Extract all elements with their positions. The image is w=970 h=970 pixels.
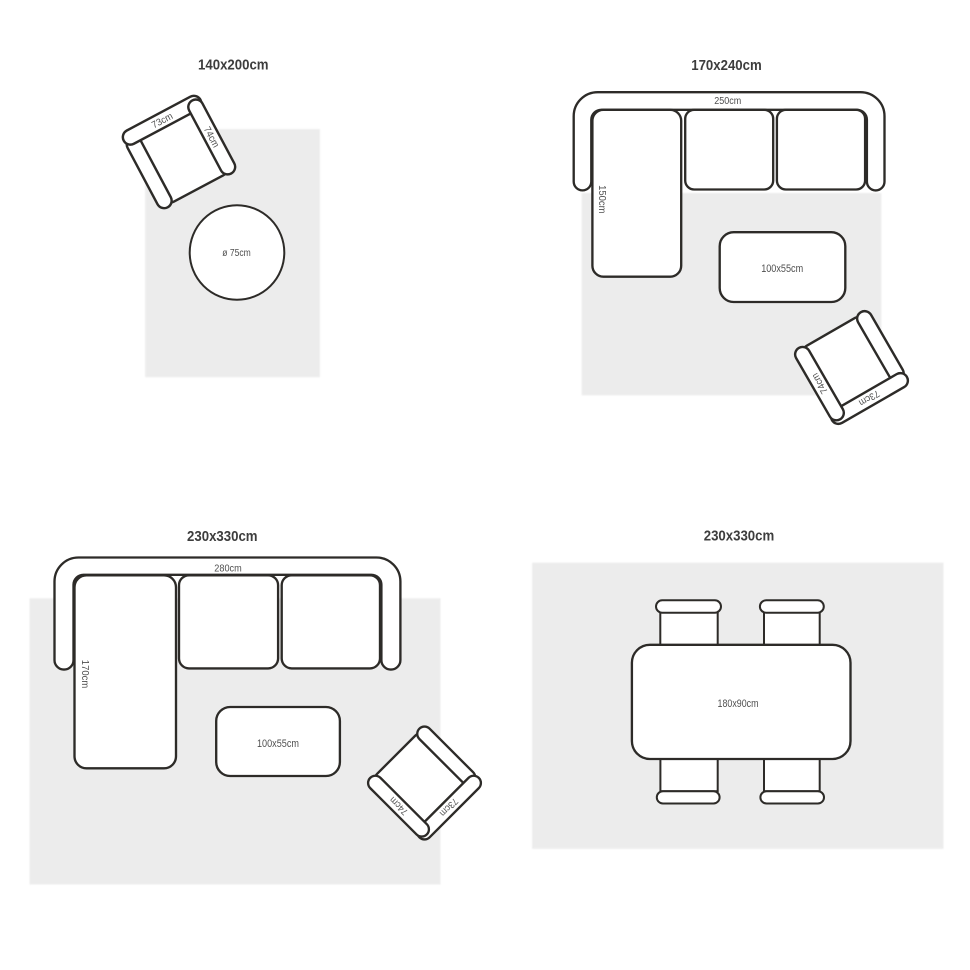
- svg-text:170cm: 170cm: [79, 660, 90, 688]
- svg-text:100x55cm: 100x55cm: [761, 263, 803, 275]
- svg-text:100x55cm: 100x55cm: [257, 738, 299, 750]
- svg-text:140x200cm: 140x200cm: [198, 57, 269, 73]
- svg-text:170x240cm: 170x240cm: [691, 58, 762, 74]
- svg-text:280cm: 280cm: [214, 563, 241, 574]
- svg-text:230x330cm: 230x330cm: [187, 529, 258, 545]
- svg-text:180x90cm: 180x90cm: [718, 698, 759, 710]
- svg-text:250cm: 250cm: [714, 96, 741, 107]
- svg-text:150cm: 150cm: [596, 185, 607, 213]
- svg-text:ø 75cm: ø 75cm: [222, 248, 251, 259]
- svg-text:230x330cm: 230x330cm: [704, 528, 775, 544]
